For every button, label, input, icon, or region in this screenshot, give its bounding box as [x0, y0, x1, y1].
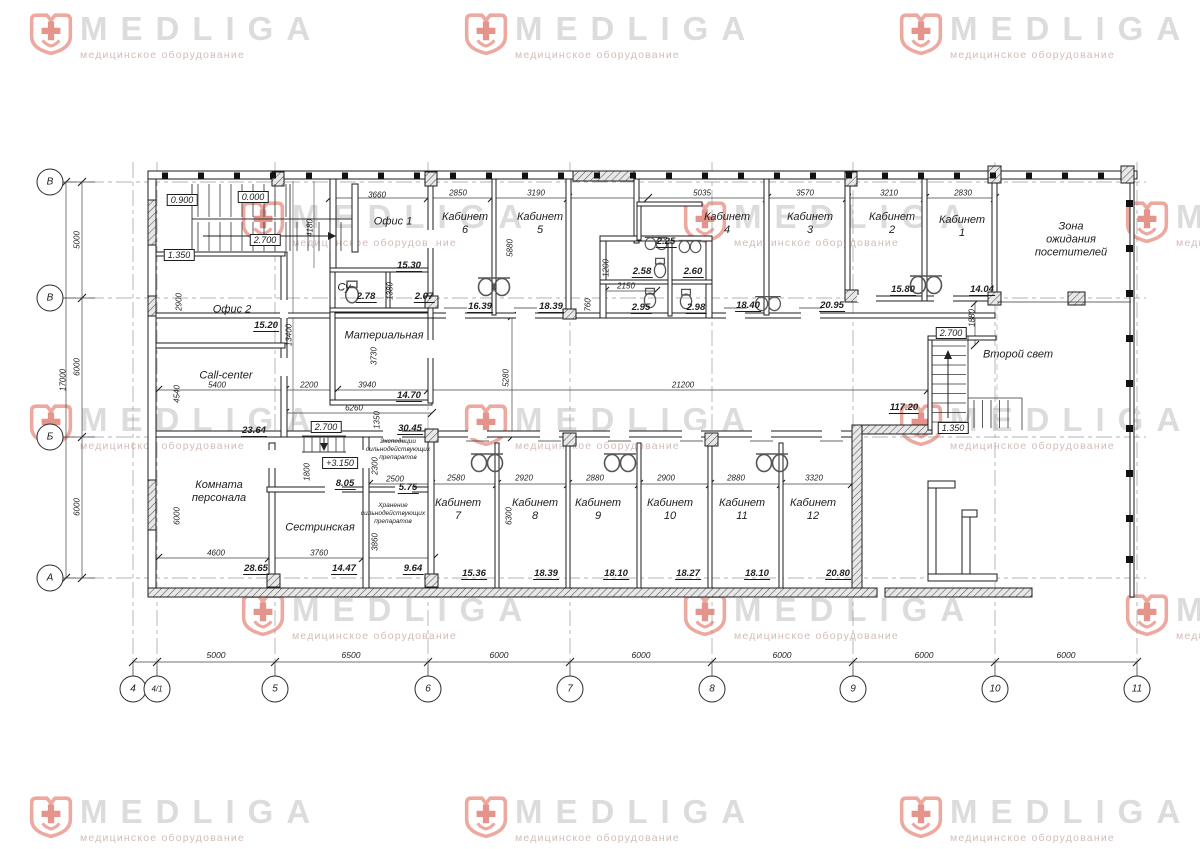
- room-area-15.80: 15.80: [890, 284, 916, 296]
- dimension-vertical-760: 760: [584, 298, 593, 311]
- dimension-3570: 3570: [796, 189, 814, 198]
- axis-bubble-bottom-6: 6: [415, 676, 442, 703]
- room-name-Кабинет: Кабинет 2: [869, 211, 915, 237]
- dimension-vertical-17000: 17000: [59, 369, 68, 391]
- axis-bubble-bottom-8: 8: [699, 676, 726, 703]
- dimension-21200: 21200: [672, 381, 694, 390]
- elevation-mark-1.350: 1.350: [164, 249, 195, 261]
- room-area-18.10: 18.10: [744, 568, 770, 580]
- axis-bubble-left-В: В: [37, 169, 64, 196]
- room-area-15.36: 15.36: [461, 568, 487, 580]
- axis-bubble-bottom-4: 4: [120, 676, 147, 703]
- elevation-mark-1.350: 1.350: [938, 422, 969, 434]
- dimension-vertical-13400: 13400: [285, 324, 294, 346]
- room-name-Кабинет: Кабинет 7: [435, 497, 481, 523]
- axis-bubble-bottom-11: 11: [1124, 676, 1151, 703]
- room-area-14.70: 14.70: [396, 390, 422, 402]
- room-area-14.47: 14.47: [331, 563, 357, 575]
- axis-bubble-bottom-9: 9: [840, 676, 867, 703]
- dimension-3660: 3660: [368, 191, 386, 200]
- room-name-Кабинет: Кабинет 3: [787, 211, 833, 237]
- dimension-vertical-5000: 5000: [73, 231, 82, 249]
- room-name-Сестринская: Сестринская: [285, 522, 354, 535]
- room-name-Второй свет: Второй свет: [983, 349, 1053, 362]
- dimension-vertical-6000: 6000: [73, 498, 82, 516]
- dimension-3320: 3320: [805, 474, 823, 483]
- dimension-2850: 2850: [449, 189, 467, 198]
- room-area-2.95: 2.95: [631, 302, 652, 314]
- room-area-18.10: 18.10: [603, 568, 629, 580]
- axis-bubble-left-Б: Б: [37, 424, 64, 451]
- room-name-Кабинет: Кабинет 1: [939, 214, 985, 240]
- room-name-Кабинет: Кабинет 9: [575, 497, 621, 523]
- room-name-Кабинет: Кабинет 12: [790, 497, 836, 523]
- axis-bubble-left-В: В: [37, 285, 64, 312]
- dimension-6260: 6260: [345, 404, 363, 413]
- room-name-Офис 1: Офис 1: [374, 216, 413, 229]
- room-area-2.07: 2.07: [414, 291, 435, 303]
- dimension-vertical-4180: 4180: [306, 219, 315, 237]
- dimension-vertical-6000: 6000: [173, 507, 182, 525]
- room-name-Материальная: Материальная: [345, 330, 424, 343]
- dimension-vertical-1350: 1350: [373, 411, 382, 429]
- room-area-18.39: 18.39: [533, 568, 559, 580]
- dimension-vertical-3860: 3860: [371, 533, 380, 551]
- axis-bubble-bottom-10: 10: [982, 676, 1009, 703]
- dimension-5400: 5400: [208, 381, 226, 390]
- room-name-Кабинет: Кабинет 5: [517, 211, 563, 237]
- dimension-2880: 2880: [727, 474, 745, 483]
- room-name-Офис 2: Офис 2: [213, 304, 252, 317]
- room-name-Су: Су: [337, 282, 350, 295]
- dimension-vertical-3730: 3730: [370, 347, 379, 365]
- axis-dimension-6000: 6000: [1057, 650, 1076, 660]
- elevation-mark-2.700: 2.700: [311, 421, 342, 433]
- room-area-18.39: 18.39: [538, 301, 564, 313]
- axis-dimension-6000: 6000: [490, 650, 509, 660]
- elevation-mark-2.700: 2.700: [250, 234, 281, 246]
- room-name-Кабинет: Кабинет 4: [704, 211, 750, 237]
- room-name-Кабинет: Кабинет 11: [719, 497, 765, 523]
- floor-plan-page: MEDLIGA медицинское оборудование MEDLIGA…: [0, 0, 1200, 849]
- dimension-2900: 2900: [657, 474, 675, 483]
- room-area-23.64: 23.64: [241, 425, 267, 437]
- room-area-20.95: 20.95: [819, 300, 845, 312]
- room-area-117.20: 117.20: [889, 402, 919, 414]
- room-name-Кабинет: Кабинет 6: [442, 211, 488, 237]
- labels-layer: Офис 1Офис 2Кабинет 6Кабинет 5Кабинет 4К…: [0, 0, 1200, 849]
- dimension-vertical-4540: 4540: [173, 385, 182, 403]
- dimension-3940: 3940: [358, 381, 376, 390]
- dimension-3760: 3760: [310, 549, 328, 558]
- room-area-14.04: 14.04: [969, 284, 995, 296]
- dimension-2830: 2830: [954, 189, 972, 198]
- room-area-15.30: 15.30: [396, 260, 422, 272]
- dimension-2880: 2880: [586, 474, 604, 483]
- room-area-2.58: 2.58: [632, 266, 653, 278]
- dimension-vertical-1380: 1380: [386, 282, 395, 300]
- room-name-small-Хранение: Хранение сильнодействующих препаратов: [361, 502, 425, 526]
- dimension-2920: 2920: [515, 474, 533, 483]
- elevation-mark-+3.150: +3.150: [322, 457, 358, 469]
- dimension-vertical-1200: 1200: [602, 259, 611, 277]
- room-area-8.05: 8.05: [335, 478, 356, 490]
- room-name-Комната: Комната персонала: [192, 479, 246, 505]
- dimension-2150: 2150: [617, 282, 635, 291]
- axis-bubble-bottom-7: 7: [557, 676, 584, 703]
- axis-bubble-left-А: А: [37, 565, 64, 592]
- elevation-mark-0.000: 0.000: [238, 191, 269, 203]
- dimension-5035: 5035: [693, 189, 711, 198]
- dimension-vertical-1800: 1800: [303, 463, 312, 481]
- dimension-vertical-1880: 1880: [968, 309, 977, 327]
- room-area-28.65: 28.65: [243, 563, 269, 575]
- room-area-2.78: 2.78: [356, 291, 377, 303]
- dimension-vertical-6000: 6000: [73, 358, 82, 376]
- room-name-Кабинет: Кабинет 8: [512, 497, 558, 523]
- room-area-5.75: 5.75: [398, 482, 419, 494]
- dimension-vertical-5280: 5280: [502, 369, 511, 387]
- axis-dimension-6000: 6000: [915, 650, 934, 660]
- dimension-3210: 3210: [880, 189, 898, 198]
- axis-dimension-6500: 6500: [342, 650, 361, 660]
- room-area-2.25: 2.25: [656, 236, 677, 248]
- room-area-18.27: 18.27: [675, 568, 701, 580]
- axis-bubble-bottom-4/1: 4/1: [144, 676, 171, 703]
- dimension-3190: 3190: [527, 189, 545, 198]
- axis-dimension-5000: 5000: [207, 650, 226, 660]
- dimension-vertical-6300: 6300: [505, 507, 514, 525]
- dimension-2500: 2500: [386, 475, 404, 484]
- room-name-Кабинет: Кабинет 10: [647, 497, 693, 523]
- elevation-mark-2.700: 2.700: [936, 327, 967, 339]
- axis-bubble-bottom-5: 5: [262, 676, 289, 703]
- dimension-vertical-5880: 5880: [506, 239, 515, 257]
- room-area-20.80: 20.80: [825, 568, 851, 580]
- room-area-9.64: 9.64: [403, 563, 424, 575]
- room-area-15.20: 15.20: [253, 320, 279, 332]
- dimension-2580: 2580: [447, 474, 465, 483]
- dimension-vertical-2900: 2900: [175, 293, 184, 311]
- room-area-18.40: 18.40: [735, 300, 761, 312]
- dimension-4600: 4600: [207, 549, 225, 558]
- dimension-2200: 2200: [300, 381, 318, 390]
- axis-dimension-6000: 6000: [773, 650, 792, 660]
- elevation-mark-0.900: 0.900: [167, 194, 198, 206]
- room-area-2.60: 2.60: [683, 266, 704, 278]
- axis-dimension-6000: 6000: [632, 650, 651, 660]
- room-area-30.45: 30.45: [397, 423, 423, 435]
- room-area-2.98: 2.98: [686, 302, 707, 314]
- dimension-vertical-2300: 2300: [371, 457, 380, 475]
- room-name-Зона: Зона ожидания посетителей: [1035, 221, 1107, 260]
- room-area-16.39: 16.39: [467, 301, 493, 313]
